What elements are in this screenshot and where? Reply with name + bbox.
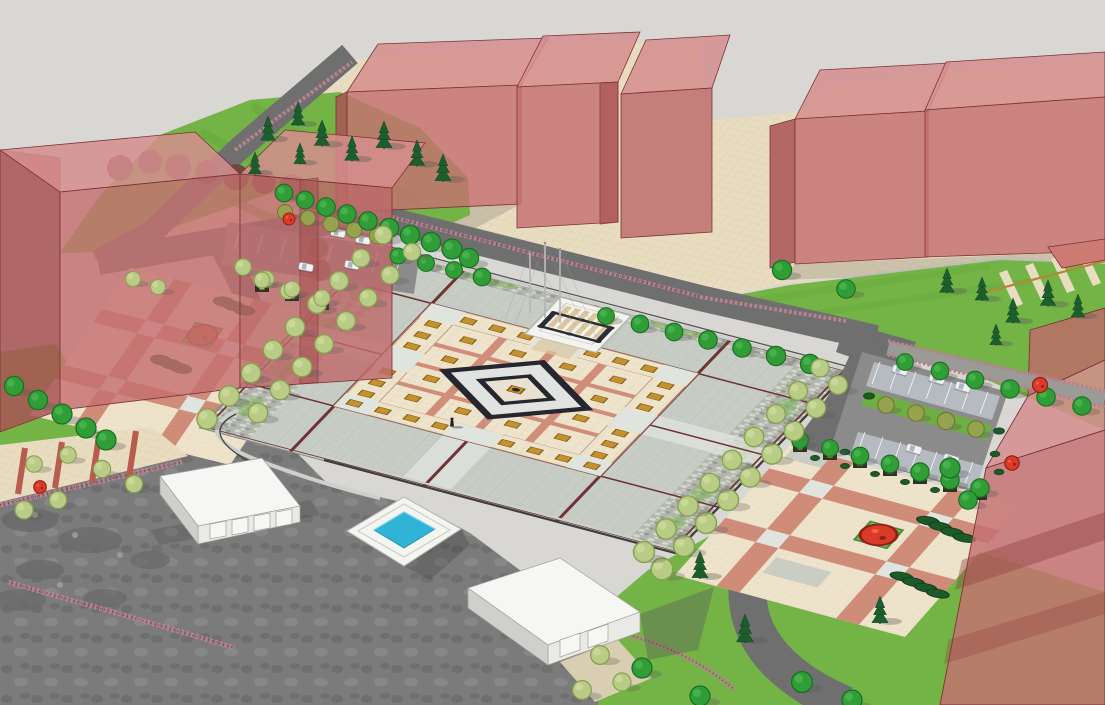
render-viewport: Aerial SketchUp-style 3D massing render … [0, 0, 1105, 705]
building-a-roof [347, 38, 548, 92]
stamp-sym-shrub-red [283, 213, 295, 225]
building-d [925, 97, 1105, 257]
building-b-tower [621, 88, 712, 238]
stamp-sym-hedge [930, 487, 939, 492]
stamp-sym-hedge [994, 469, 1004, 475]
stamp-sym-hedge [864, 393, 875, 399]
stamp-sym-hedge [990, 451, 1000, 457]
stamp-sym-shrub-red [1033, 378, 1048, 393]
stamp-sym-hedge [900, 479, 909, 484]
stamp-sym-shrub-red [34, 481, 47, 494]
building-c [795, 111, 928, 264]
stamp-sym-hedge [840, 463, 849, 468]
site-render [0, 0, 1105, 705]
stamp-sym-hedge [994, 428, 1005, 434]
stamp-sym-hedge [870, 471, 879, 476]
building-f [60, 174, 240, 410]
stamp-sym-shrub-red [1005, 456, 1019, 470]
stamp-sym-hedge [810, 455, 819, 460]
